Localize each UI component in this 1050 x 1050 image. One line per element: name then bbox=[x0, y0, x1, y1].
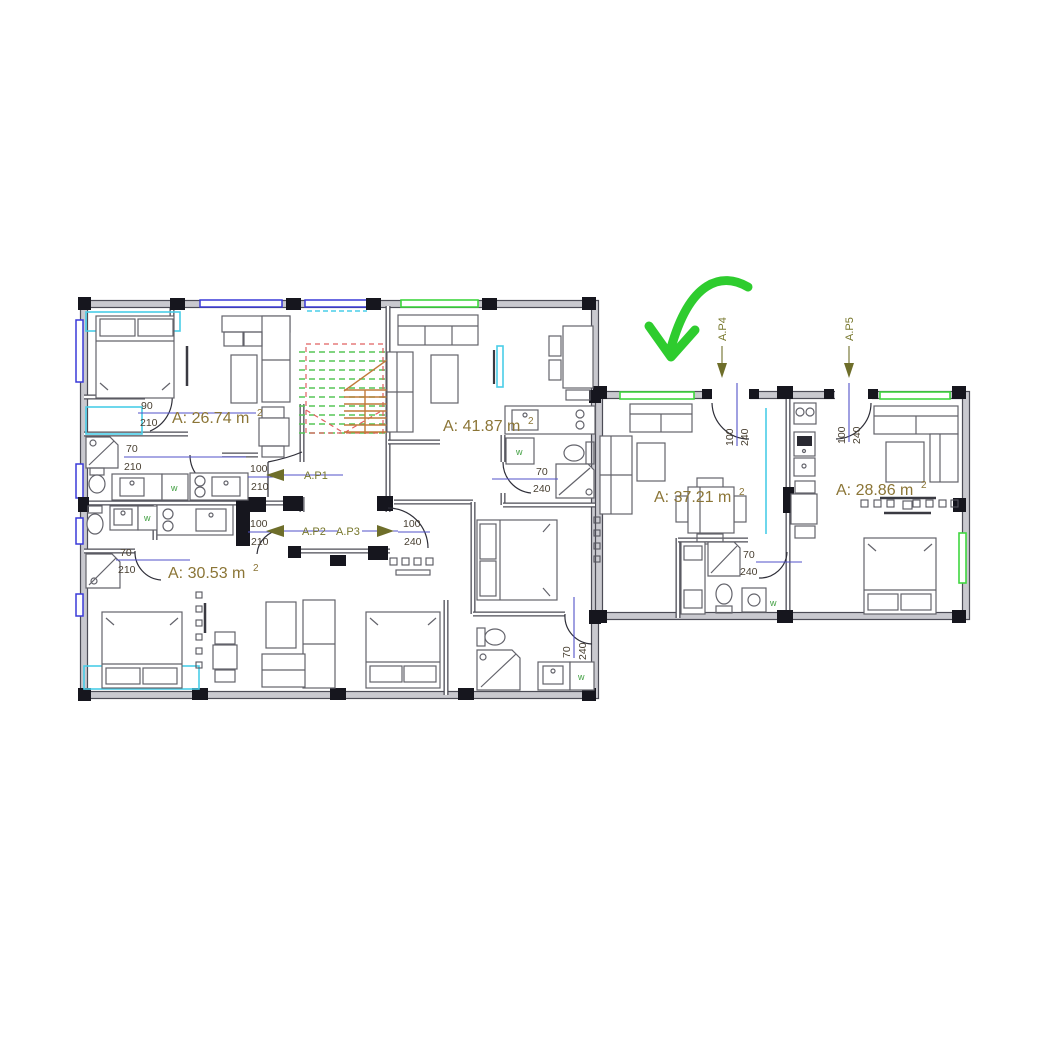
floor-plan: w w bbox=[0, 0, 1050, 1050]
svg-text:210: 210 bbox=[124, 461, 142, 473]
svg-text:70: 70 bbox=[743, 549, 755, 561]
svg-text:A: 26.74 m: A: 26.74 m bbox=[172, 410, 249, 427]
svg-text:70: 70 bbox=[536, 466, 548, 478]
apt3-coffee-table bbox=[431, 355, 458, 403]
area-label-apt5: A: 28.86 m 2 bbox=[836, 480, 927, 499]
dim-apt1-bath-door: 70 210 bbox=[124, 443, 246, 473]
svg-text:A.P2: A.P2 bbox=[302, 526, 326, 538]
svg-text:90: 90 bbox=[141, 400, 153, 412]
green-highlight-arrow bbox=[649, 281, 748, 357]
svg-text:100: 100 bbox=[250, 463, 268, 475]
apt1-kitchen bbox=[190, 473, 248, 500]
window-green-top bbox=[401, 300, 478, 307]
toilet-icon bbox=[89, 475, 105, 493]
svg-text:70: 70 bbox=[561, 646, 573, 658]
arrow-down-icon bbox=[844, 363, 854, 378]
apt4-sofa-top bbox=[630, 404, 692, 432]
svg-text:2: 2 bbox=[739, 487, 745, 498]
apt1-bed bbox=[96, 316, 174, 398]
tv-screen-apt3 bbox=[497, 346, 503, 387]
apt2-sofa bbox=[262, 600, 335, 688]
apt3-bed2 bbox=[366, 612, 440, 688]
arrow-down-icon bbox=[717, 363, 727, 378]
toilet-icon bbox=[485, 629, 505, 645]
svg-text:2: 2 bbox=[921, 480, 927, 491]
marker-ap2: A.P2 bbox=[266, 525, 338, 538]
svg-text:A: 30.53 m: A: 30.53 m bbox=[168, 565, 245, 582]
arrow-left-icon bbox=[266, 469, 284, 481]
apt2-tv-partition bbox=[196, 592, 205, 668]
apt5-tv-partition bbox=[861, 498, 958, 513]
apt3-closet-dashed bbox=[390, 558, 433, 575]
apt2-bed bbox=[102, 612, 182, 688]
washing-machine-label: w bbox=[143, 513, 151, 523]
svg-text:A.P3: A.P3 bbox=[336, 526, 360, 538]
apt5-kitchen-table bbox=[791, 481, 817, 538]
apt3-dining-table bbox=[549, 326, 593, 400]
window-green-right-bldg-1 bbox=[620, 392, 694, 399]
marker-ap5: A.P5 bbox=[844, 317, 856, 378]
apt3-sofa-top bbox=[398, 315, 478, 345]
svg-text:240: 240 bbox=[739, 428, 751, 446]
entry-opening-ap5 bbox=[835, 387, 872, 401]
marker-ap3: A.P3 bbox=[336, 525, 398, 538]
window-blue-top-1 bbox=[200, 300, 282, 307]
svg-text:A: 28.86 m: A: 28.86 m bbox=[836, 482, 913, 499]
wardrobe bbox=[86, 407, 142, 434]
toilet-tank bbox=[477, 628, 485, 646]
area-label-apt4: A: 37.21 m 2 bbox=[654, 487, 745, 506]
toilet-tank bbox=[88, 506, 102, 513]
area-label-apt1: A: 26.74 m 2 bbox=[172, 408, 263, 427]
svg-text:A.P4: A.P4 bbox=[717, 317, 729, 341]
apt1-dining-table bbox=[259, 407, 289, 457]
toilet-icon bbox=[87, 514, 103, 534]
window-green-right-wall bbox=[959, 533, 966, 583]
window-blue-left-4 bbox=[76, 594, 83, 616]
dim-apt3-bath1-door: 70 240 bbox=[492, 466, 558, 495]
door-apt3-bath1 bbox=[503, 462, 531, 493]
arrow-left-icon bbox=[266, 525, 284, 537]
area-label-apt3: A: 41.87 m 2 bbox=[443, 416, 534, 435]
svg-text:A: 37.21 m: A: 37.21 m bbox=[654, 489, 731, 506]
svg-text:70: 70 bbox=[120, 547, 132, 559]
toilet-icon bbox=[564, 445, 584, 461]
svg-text:210: 210 bbox=[251, 536, 269, 548]
apt5-kitchen bbox=[794, 403, 816, 476]
apt5-bed bbox=[864, 538, 936, 614]
svg-text:240: 240 bbox=[533, 483, 551, 495]
marker-ap4: A.P4 bbox=[717, 317, 729, 378]
svg-text:A: 41.87 m: A: 41.87 m bbox=[443, 418, 520, 435]
svg-text:2: 2 bbox=[528, 416, 534, 427]
washing-machine-label: w bbox=[769, 598, 777, 608]
apt1-coffee-table bbox=[231, 355, 257, 403]
svg-text:240: 240 bbox=[577, 642, 589, 660]
marker-ap1: A.P1 bbox=[266, 469, 343, 482]
entry-opening-ap4 bbox=[711, 387, 750, 401]
svg-text:210: 210 bbox=[140, 417, 158, 429]
svg-text:240: 240 bbox=[851, 426, 863, 444]
apt2-dining-table bbox=[213, 632, 237, 682]
washing-machine-label: w bbox=[515, 447, 523, 457]
svg-text:A.P1: A.P1 bbox=[304, 470, 328, 482]
staircase bbox=[299, 344, 387, 434]
dim-apt4-bath-door: 70 240 bbox=[740, 549, 802, 578]
svg-text:240: 240 bbox=[740, 566, 758, 578]
washing-machine-label: w bbox=[577, 672, 585, 682]
apt5-coffee-table bbox=[886, 442, 924, 482]
washbasin bbox=[742, 588, 766, 612]
door-apt3-bath2 bbox=[565, 614, 592, 644]
svg-text:100: 100 bbox=[403, 518, 421, 530]
svg-text:70: 70 bbox=[126, 443, 138, 455]
svg-text:A.P5: A.P5 bbox=[844, 317, 856, 341]
apt4-dining-table bbox=[676, 478, 746, 544]
arrow-right-icon bbox=[377, 525, 394, 537]
apt4-coffee-table bbox=[637, 443, 665, 481]
svg-text:2: 2 bbox=[257, 408, 263, 419]
door-apt2-bath bbox=[135, 551, 161, 580]
washing-machine-label: w bbox=[170, 483, 178, 493]
dim-apt3-bath2-door: 70 240 bbox=[561, 597, 589, 660]
window-blue-left-1 bbox=[76, 320, 83, 382]
svg-text:210: 210 bbox=[251, 481, 269, 493]
apt2-kitchen bbox=[157, 505, 233, 535]
svg-text:240: 240 bbox=[404, 536, 422, 548]
svg-text:100: 100 bbox=[724, 428, 736, 446]
toilet-tank bbox=[90, 468, 104, 475]
window-green-right-bldg-2 bbox=[880, 392, 950, 399]
apt3-bed1 bbox=[477, 520, 557, 600]
window-blue-top-2 bbox=[305, 300, 369, 307]
stairs-lower-flight bbox=[344, 360, 387, 434]
svg-text:100: 100 bbox=[250, 518, 268, 530]
window-blue-left-2 bbox=[76, 464, 83, 498]
door-apt4-bath bbox=[759, 552, 787, 578]
apt3-sofa-left bbox=[387, 352, 413, 432]
area-label-apt2: A: 30.53 m 2 bbox=[168, 563, 259, 582]
svg-text:2: 2 bbox=[253, 563, 259, 574]
apt4-sofa-left bbox=[600, 436, 632, 514]
toilet-icon bbox=[716, 584, 732, 604]
svg-text:210: 210 bbox=[118, 564, 136, 576]
svg-text:100: 100 bbox=[836, 426, 848, 444]
window-blue-left-3 bbox=[76, 518, 83, 544]
